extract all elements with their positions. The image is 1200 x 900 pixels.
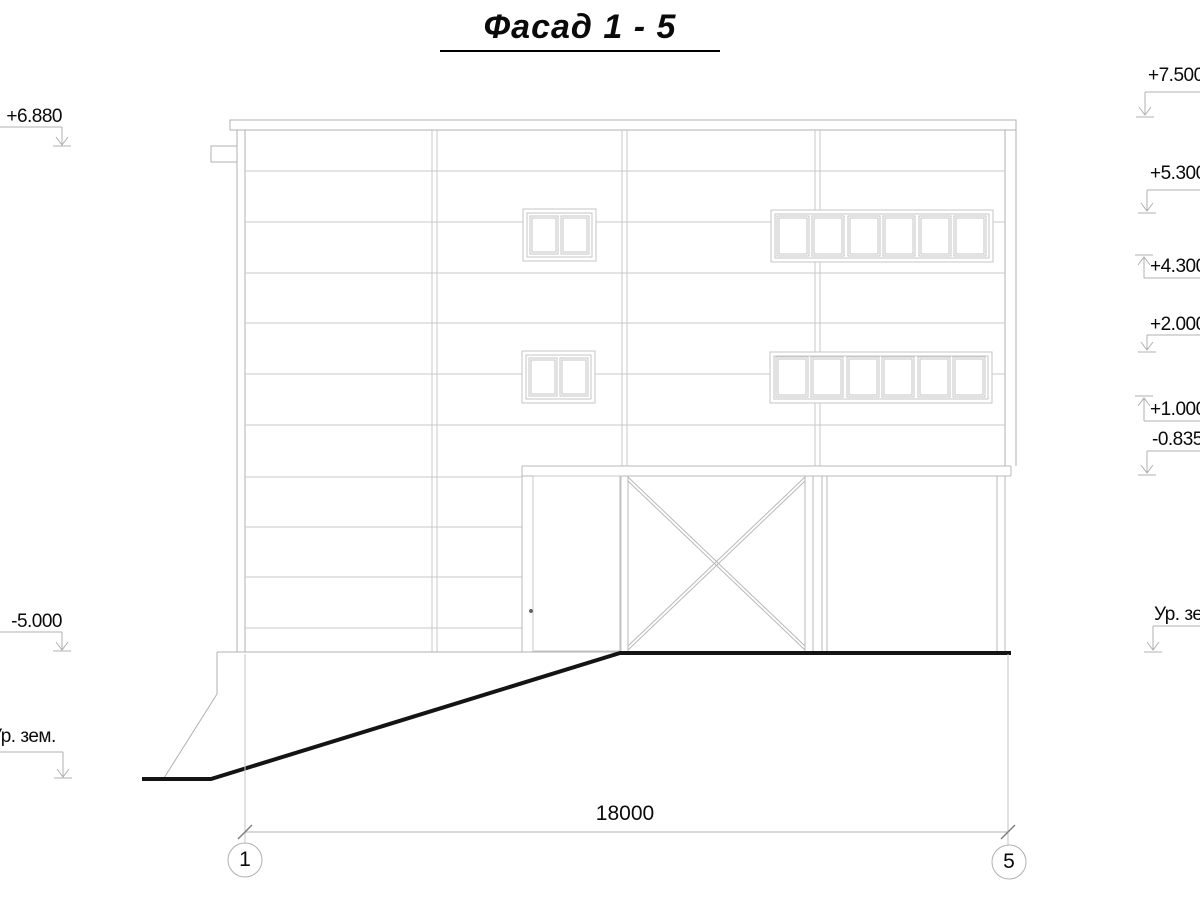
cross-brace [628, 477, 805, 650]
elevation-label-plus7500: +7.500 [1148, 65, 1200, 87]
facade-drawing-sheet: Фасад 1 - 5 +6.880 -5.000 Ур. зем. +7.50… [0, 0, 1200, 900]
ground-line [142, 653, 1011, 779]
drawing-title: Фасад 1 - 5 [440, 8, 720, 52]
axis-label-5: 5 [994, 850, 1024, 874]
window-strip-upper-right [771, 210, 993, 262]
elevation-symbols-left [0, 127, 72, 778]
panel-dividers [432, 130, 820, 652]
window-upper-left [523, 209, 596, 261]
lower-level [522, 466, 1011, 652]
facade-linework [0, 0, 1200, 900]
axis-label-1: 1 [230, 848, 260, 872]
elevation-label-plus2000: +2.000 [1150, 314, 1200, 336]
elevation-label-plus6880: +6.880 [0, 106, 62, 128]
window-lower-left [522, 351, 595, 403]
elevation-label-plus4300: +4.300 [1150, 256, 1200, 278]
dimension-value: 18000 [560, 802, 690, 826]
elevation-label-ground-left: Ур. зем. [0, 726, 56, 748]
left-ledge [211, 146, 237, 162]
elevation-label-minus0835: -0.835 [1152, 429, 1200, 451]
elevation-label-plus5300: +5.300 [1150, 163, 1200, 185]
dimension-line [228, 654, 1026, 879]
window-strip-lower-right [770, 352, 992, 403]
foundation [164, 652, 620, 778]
door [533, 476, 621, 651]
elevation-label-plus1000: +1.000 [1150, 399, 1200, 421]
elevation-label-minus5000: -5.000 [0, 611, 62, 633]
elevation-label-ground-right: Ур. зем. [1154, 604, 1200, 626]
door-handle [529, 609, 533, 613]
